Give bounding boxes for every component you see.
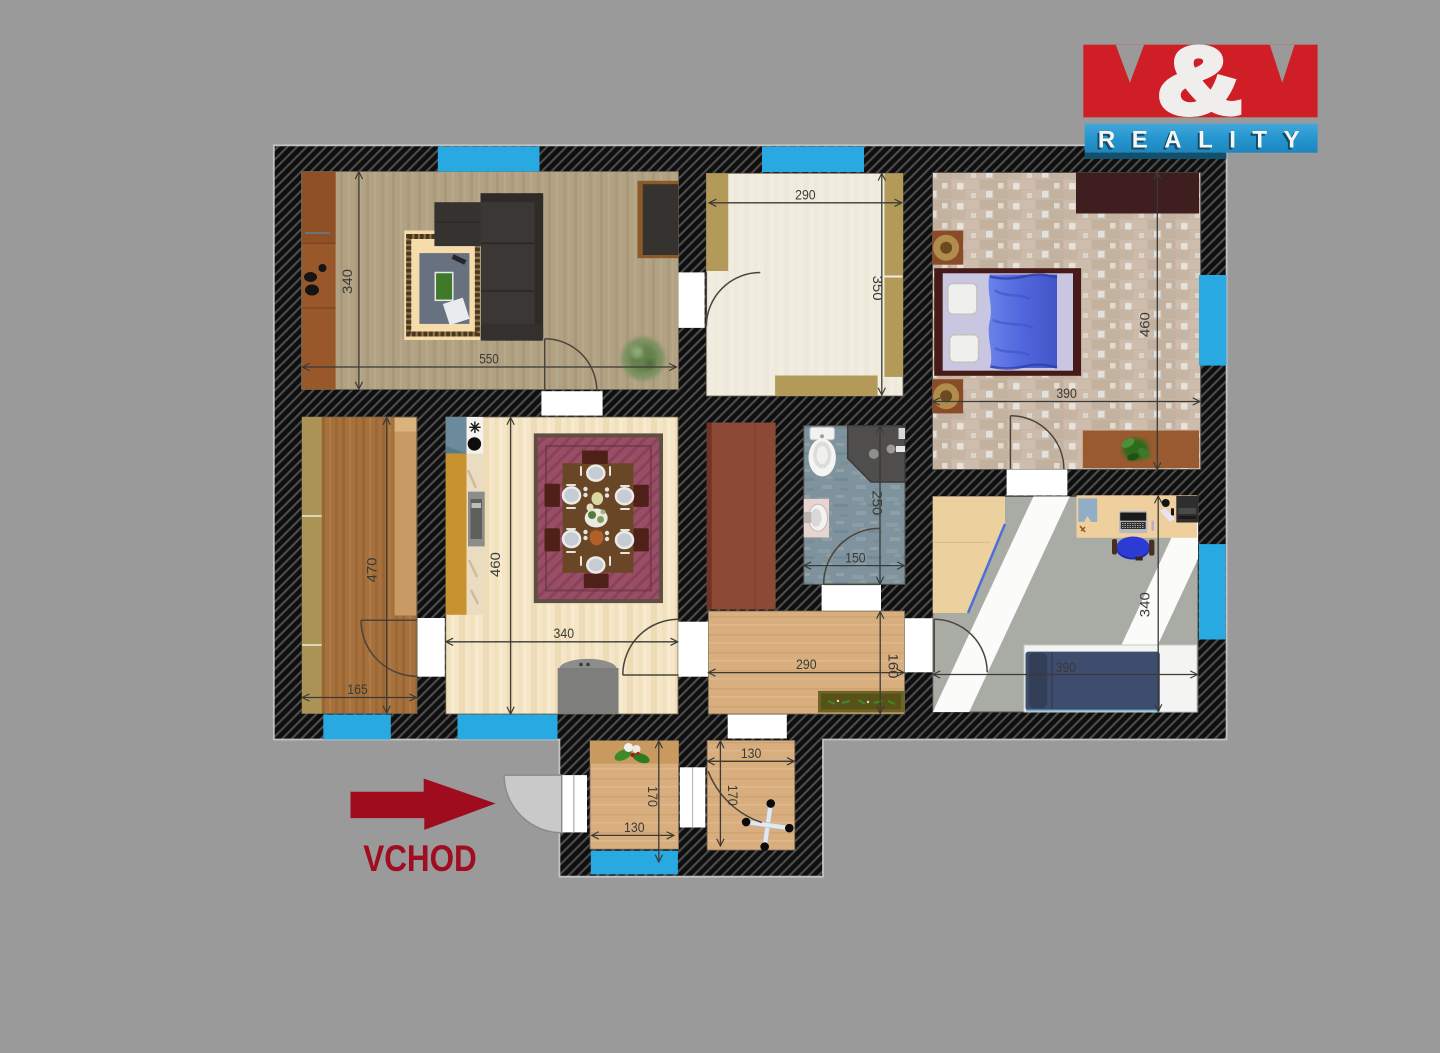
svg-text:460: 460: [488, 552, 503, 577]
svg-text:165: 165: [347, 682, 368, 697]
svg-text:390: 390: [1056, 660, 1077, 675]
svg-text:340: 340: [340, 269, 355, 294]
svg-text:470: 470: [365, 558, 380, 583]
svg-text:340: 340: [1137, 592, 1152, 617]
svg-text:130: 130: [741, 746, 762, 761]
svg-text:150: 150: [845, 550, 866, 565]
svg-text:460: 460: [1138, 312, 1153, 337]
svg-text:290: 290: [796, 657, 817, 672]
svg-text:340: 340: [554, 626, 575, 641]
svg-text:&: &: [1158, 28, 1242, 134]
svg-text:REALITY: REALITY: [1098, 127, 1316, 154]
svg-text:160: 160: [886, 654, 901, 679]
svg-text:130: 130: [624, 820, 645, 835]
svg-text:350: 350: [870, 276, 885, 301]
svg-text:170: 170: [725, 785, 740, 806]
svg-text:550: 550: [479, 352, 499, 367]
svg-text:VCHOD: VCHOD: [363, 838, 477, 879]
svg-text:250: 250: [869, 490, 884, 515]
svg-text:170: 170: [645, 786, 660, 807]
svg-text:290: 290: [795, 188, 816, 203]
svg-text:390: 390: [1056, 386, 1077, 401]
